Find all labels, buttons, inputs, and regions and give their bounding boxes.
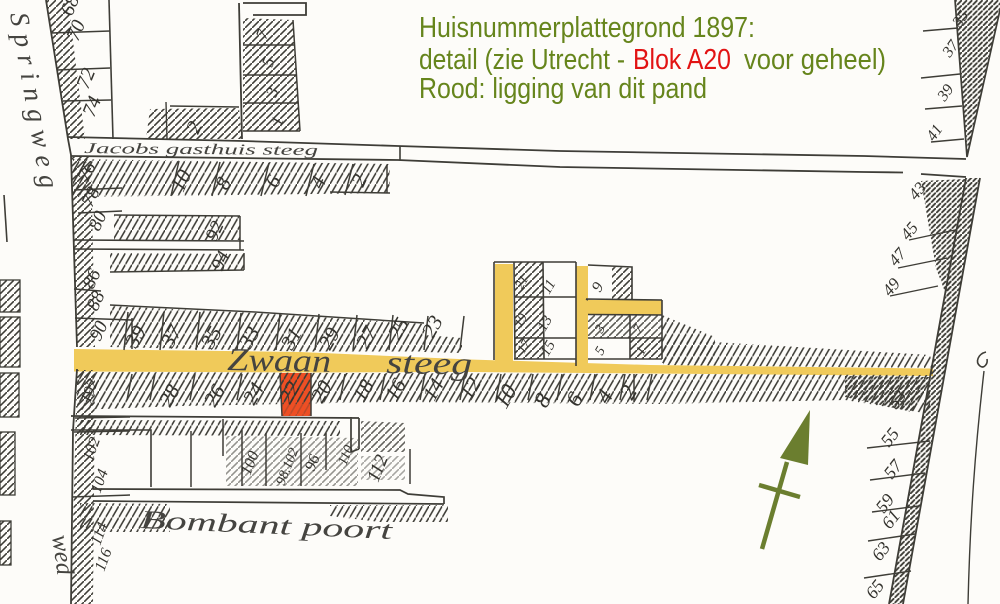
- svg-text:Zwaan: Zwaan: [227, 341, 332, 379]
- svg-text:steeg: steeg: [386, 344, 473, 381]
- svg-text:Rood: ligging van dit pand: Rood: ligging van dit pand: [419, 73, 707, 105]
- svg-text:voor geheel): voor geheel): [744, 44, 886, 76]
- svg-text:detail (zie Utrecht -: detail (zie Utrecht -: [419, 44, 625, 76]
- svg-text:Huisnummerplattegrond 1897:: Huisnummerplattegrond 1897:: [419, 12, 755, 44]
- svg-text:Blok A20: Blok A20: [633, 44, 731, 76]
